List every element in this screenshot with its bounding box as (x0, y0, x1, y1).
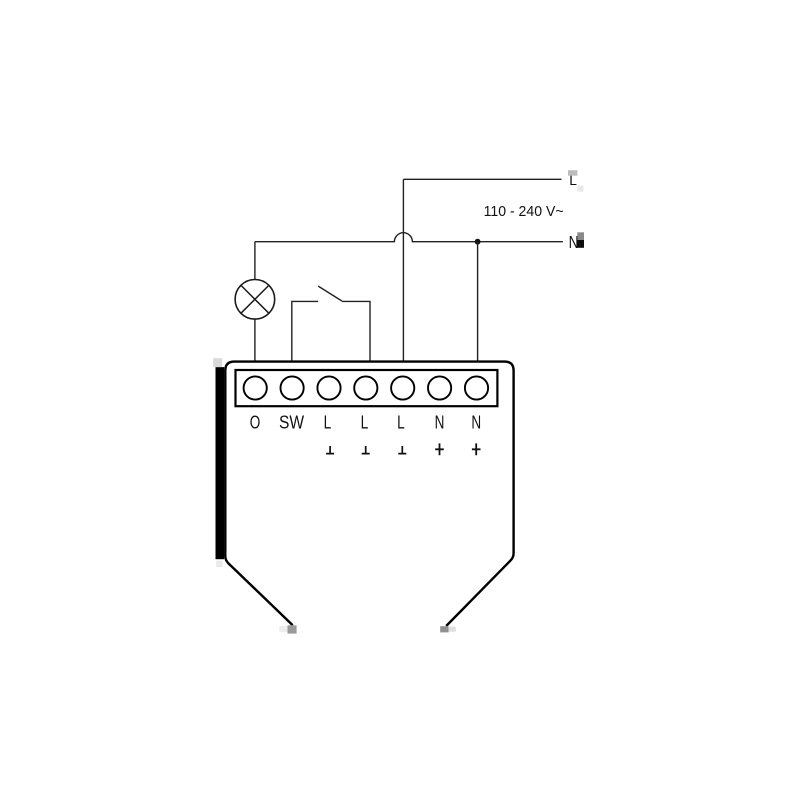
svg-text:L: L (397, 413, 405, 433)
svg-text:N: N (435, 413, 445, 433)
svg-text:110 - 240 V~: 110 - 240 V~ (484, 204, 564, 220)
svg-text:N: N (569, 233, 579, 252)
svg-text:O: O (250, 413, 261, 433)
svg-text:L: L (361, 413, 369, 433)
svg-text:SW: SW (279, 413, 304, 433)
svg-text:N: N (471, 413, 481, 433)
svg-text:L: L (324, 413, 332, 433)
